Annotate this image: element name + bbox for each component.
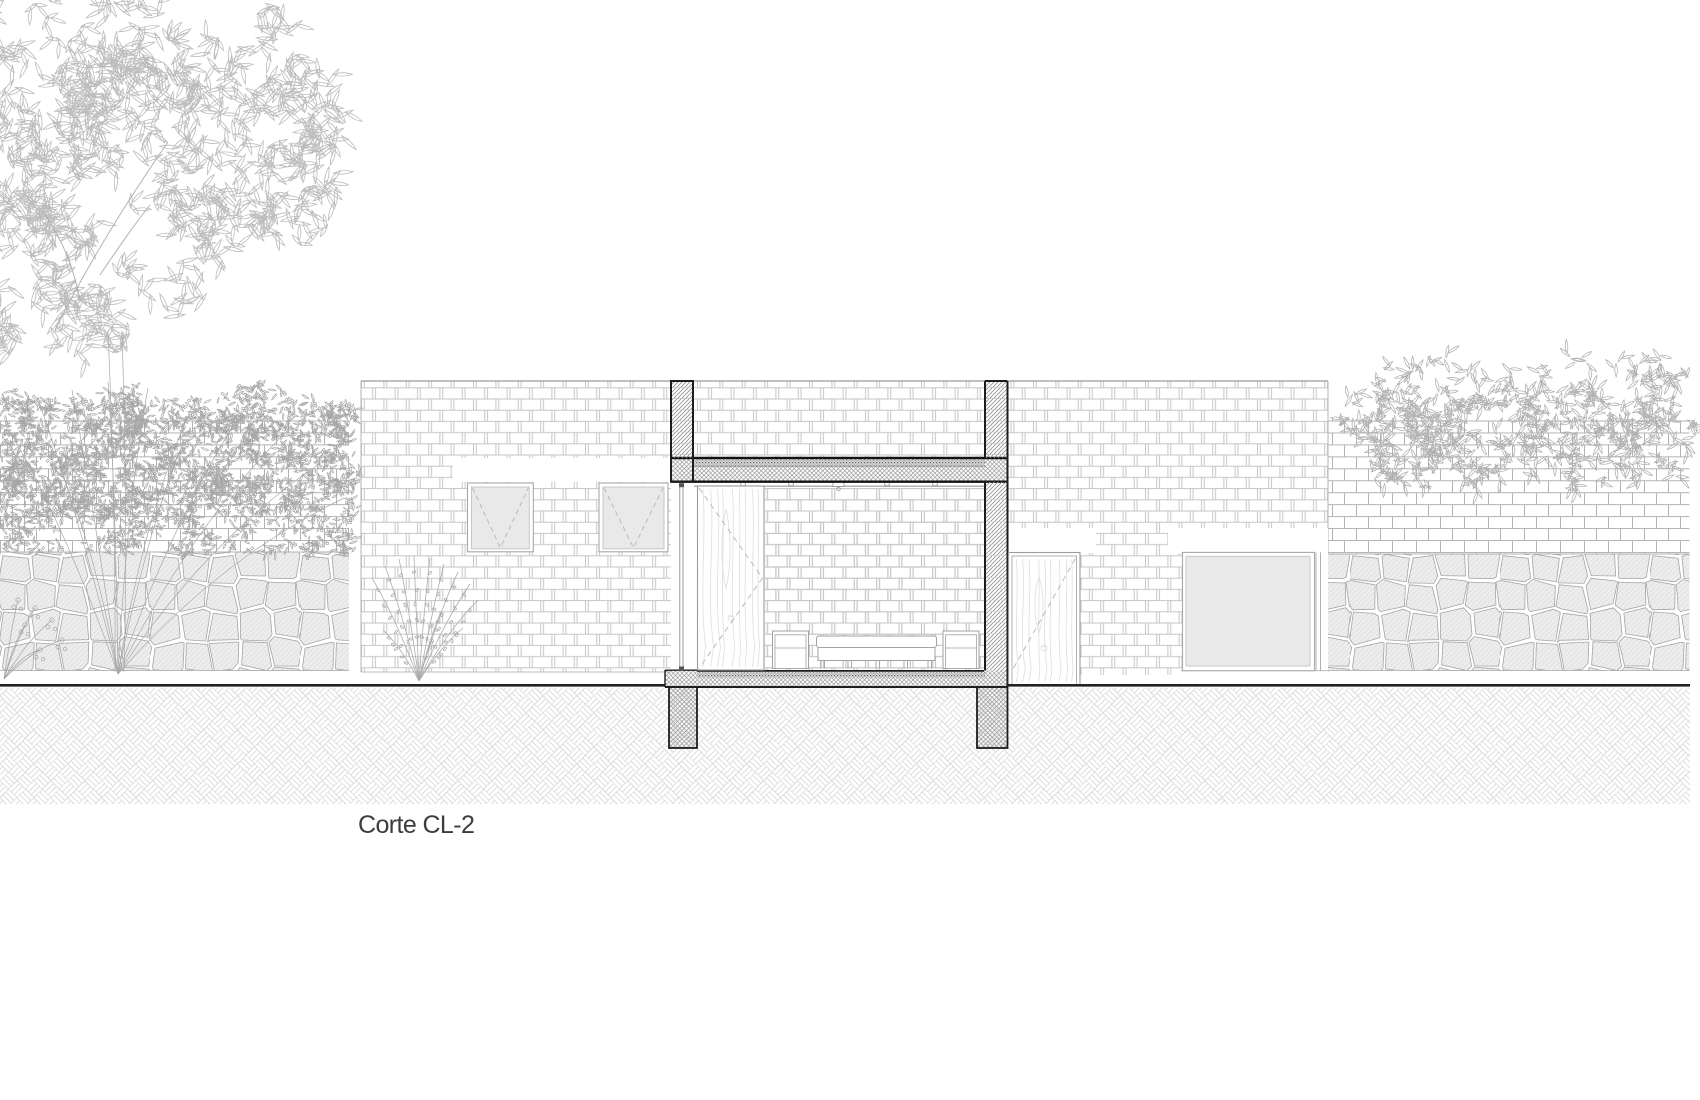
svg-text:Corte CL-2: Corte CL-2: [358, 811, 474, 839]
